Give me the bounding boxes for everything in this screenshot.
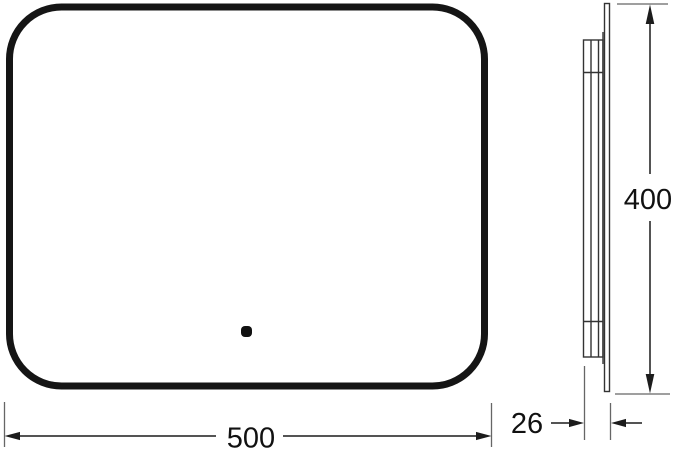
width-arrow-right xyxy=(476,432,492,440)
height-arrow-top xyxy=(646,5,655,25)
technical-drawing: 500 400 26 xyxy=(0,0,673,449)
depth-dimension: 26 xyxy=(511,366,642,440)
height-arrow-bottom xyxy=(646,374,655,394)
width-arrow-left xyxy=(5,432,21,440)
depth-arrow-right xyxy=(611,419,626,427)
touch-sensor-dot xyxy=(241,326,252,337)
front-view xyxy=(10,7,485,386)
drawing-svg: 500 400 26 xyxy=(0,0,673,449)
side-view-frame-box xyxy=(584,40,604,357)
depth-dimension-label: 26 xyxy=(511,408,543,440)
depth-arrow-left xyxy=(569,419,584,427)
width-dimension: 500 xyxy=(5,402,492,449)
width-dimension-label: 500 xyxy=(227,423,275,449)
height-dimension: 400 xyxy=(615,4,672,394)
height-dimension-label: 400 xyxy=(624,184,672,216)
side-view xyxy=(584,4,610,392)
side-view-glass-panel xyxy=(605,4,610,392)
